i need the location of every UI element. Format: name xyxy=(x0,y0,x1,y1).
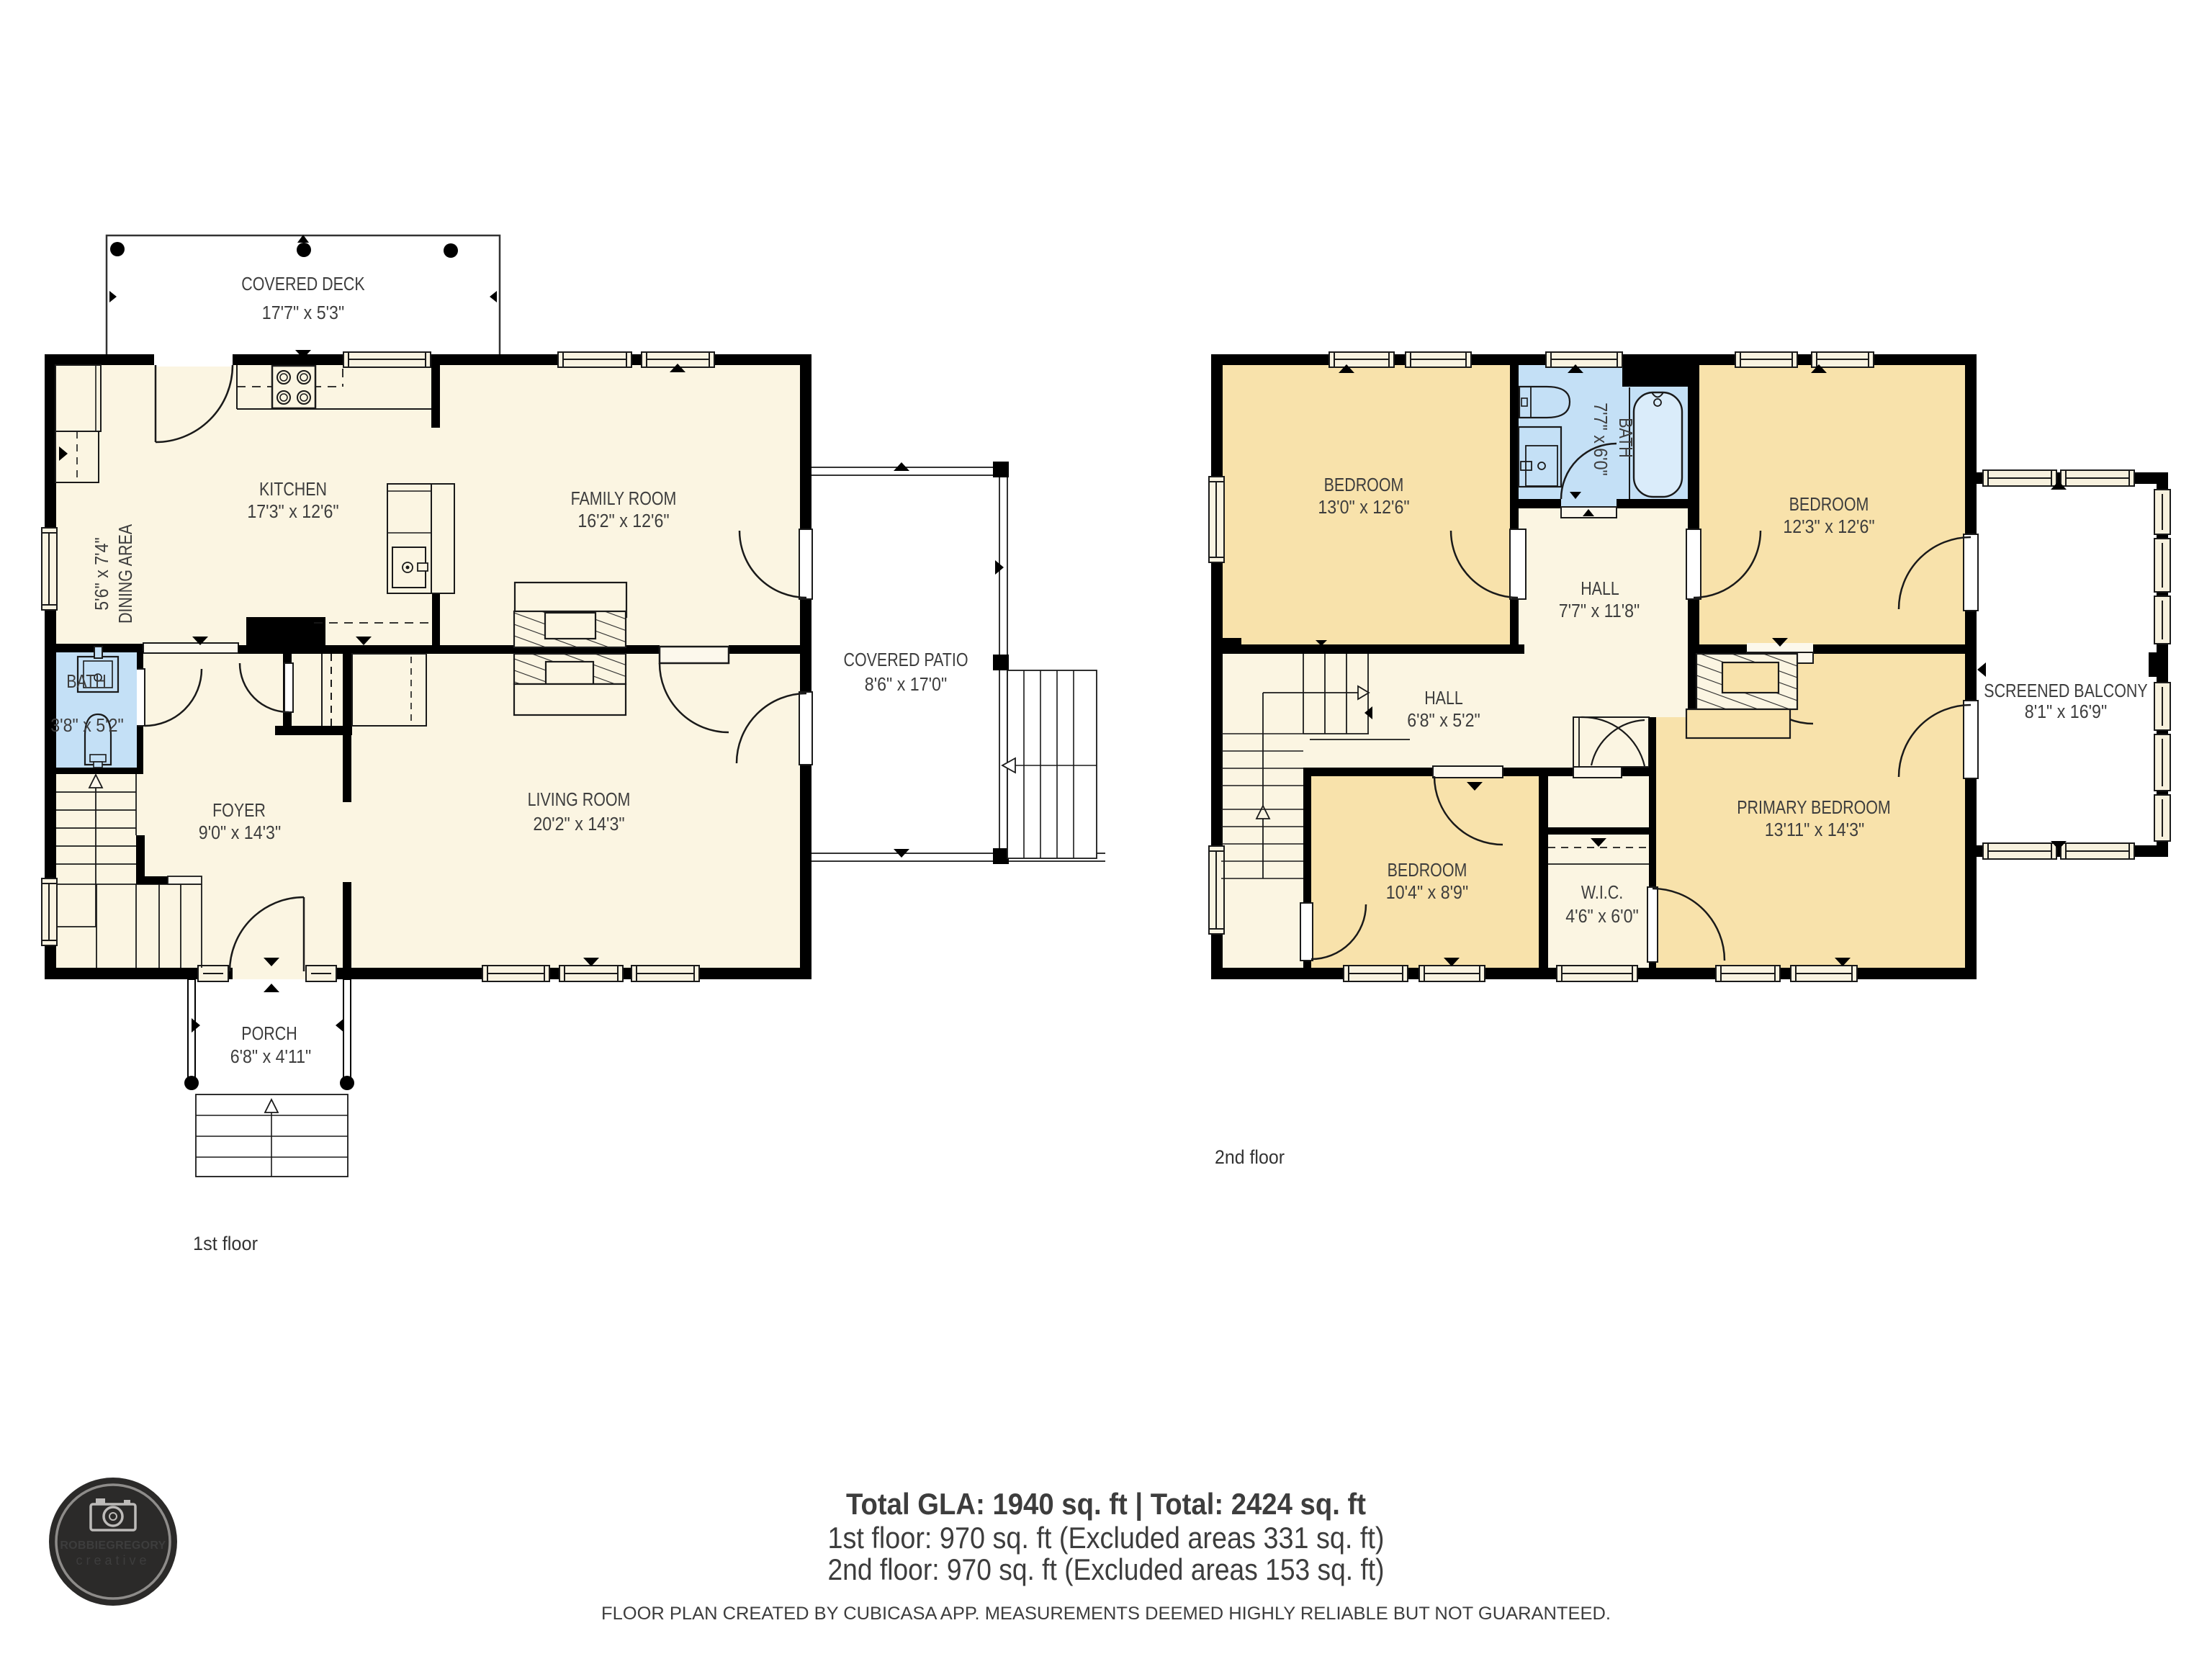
svg-text:COVERED PATIO: COVERED PATIO xyxy=(844,650,968,670)
svg-text:FOYER: FOYER xyxy=(212,801,266,821)
svg-text:1st floor: 1st floor xyxy=(193,1233,258,1254)
svg-text:BEDROOM: BEDROOM xyxy=(1388,860,1467,881)
svg-text:2nd floor: 970 sq. ft (Exclude: 2nd floor: 970 sq. ft (Excluded areas 15… xyxy=(828,1552,1385,1586)
svg-text:1st floor: 970 sq. ft (Exclude: 1st floor: 970 sq. ft (Excluded areas 33… xyxy=(828,1521,1385,1555)
svg-text:3'8" x 5'2": 3'8" x 5'2" xyxy=(50,716,124,736)
svg-text:5'6" x 7'4": 5'6" x 7'4" xyxy=(92,537,112,611)
svg-text:12'3" x 12'6": 12'3" x 12'6" xyxy=(1783,517,1874,537)
svg-text:8'6" x 17'0": 8'6" x 17'0" xyxy=(865,675,947,695)
svg-text:FAMILY ROOM: FAMILY ROOM xyxy=(571,489,677,509)
svg-text:Total GLA: 1940 sq. ft | Total: Total GLA: 1940 sq. ft | Total: 2424 sq.… xyxy=(846,1487,1366,1521)
svg-text:COVERED DECK: COVERED DECK xyxy=(241,274,364,295)
svg-text:KITCHEN: KITCHEN xyxy=(259,480,327,500)
svg-text:6'8" x 5'2": 6'8" x 5'2" xyxy=(1407,711,1480,731)
svg-text:HALL: HALL xyxy=(1581,579,1619,599)
svg-text:BEDROOM: BEDROOM xyxy=(1789,495,1869,515)
svg-text:BEDROOM: BEDROOM xyxy=(1324,475,1404,495)
svg-text:BATH: BATH xyxy=(66,672,107,692)
svg-text:LIVING ROOM: LIVING ROOM xyxy=(528,790,631,810)
svg-text:W.I.C.: W.I.C. xyxy=(1581,883,1623,903)
svg-text:16'2" x 12'6": 16'2" x 12'6" xyxy=(577,511,669,531)
svg-text:13'11" x 14'3": 13'11" x 14'3" xyxy=(1765,820,1865,840)
svg-text:2nd floor: 2nd floor xyxy=(1215,1146,1285,1168)
svg-text:9'0" x 14'3": 9'0" x 14'3" xyxy=(199,823,281,843)
svg-text:HALL: HALL xyxy=(1424,688,1463,709)
svg-text:creative: creative xyxy=(76,1553,150,1568)
svg-text:ROBBIEGREGORY: ROBBIEGREGORY xyxy=(60,1539,166,1552)
svg-text:FLOOR PLAN CREATED BY CUBICASA: FLOOR PLAN CREATED BY CUBICASA APP. MEAS… xyxy=(601,1604,1611,1624)
svg-text:DINING AREA: DINING AREA xyxy=(116,524,136,624)
svg-text:13'0" x 12'6": 13'0" x 12'6" xyxy=(1318,498,1409,518)
svg-text:SCREENED BALCONY: SCREENED BALCONY xyxy=(1984,681,2147,701)
svg-text:7'7" x 6'0": 7'7" x 6'0" xyxy=(1590,403,1610,476)
svg-text:20'2" x 14'3": 20'2" x 14'3" xyxy=(533,814,624,835)
svg-text:PRIMARY BEDROOM: PRIMARY BEDROOM xyxy=(1737,798,1891,818)
svg-text:7'7" x 11'8": 7'7" x 11'8" xyxy=(1559,601,1640,621)
svg-text:17'3" x 12'6": 17'3" x 12'6" xyxy=(247,502,338,522)
svg-text:10'4" x 8'9": 10'4" x 8'9" xyxy=(1386,883,1468,903)
svg-text:8'1" x 16'9": 8'1" x 16'9" xyxy=(2025,702,2107,722)
svg-text:4'6" x 6'0": 4'6" x 6'0" xyxy=(1565,907,1639,927)
svg-text:BATH: BATH xyxy=(1615,418,1635,458)
svg-text:6'8" x 4'11": 6'8" x 4'11" xyxy=(230,1047,312,1067)
svg-text:17'7" x 5'3": 17'7" x 5'3" xyxy=(262,303,344,323)
svg-text:PORCH: PORCH xyxy=(241,1024,297,1044)
